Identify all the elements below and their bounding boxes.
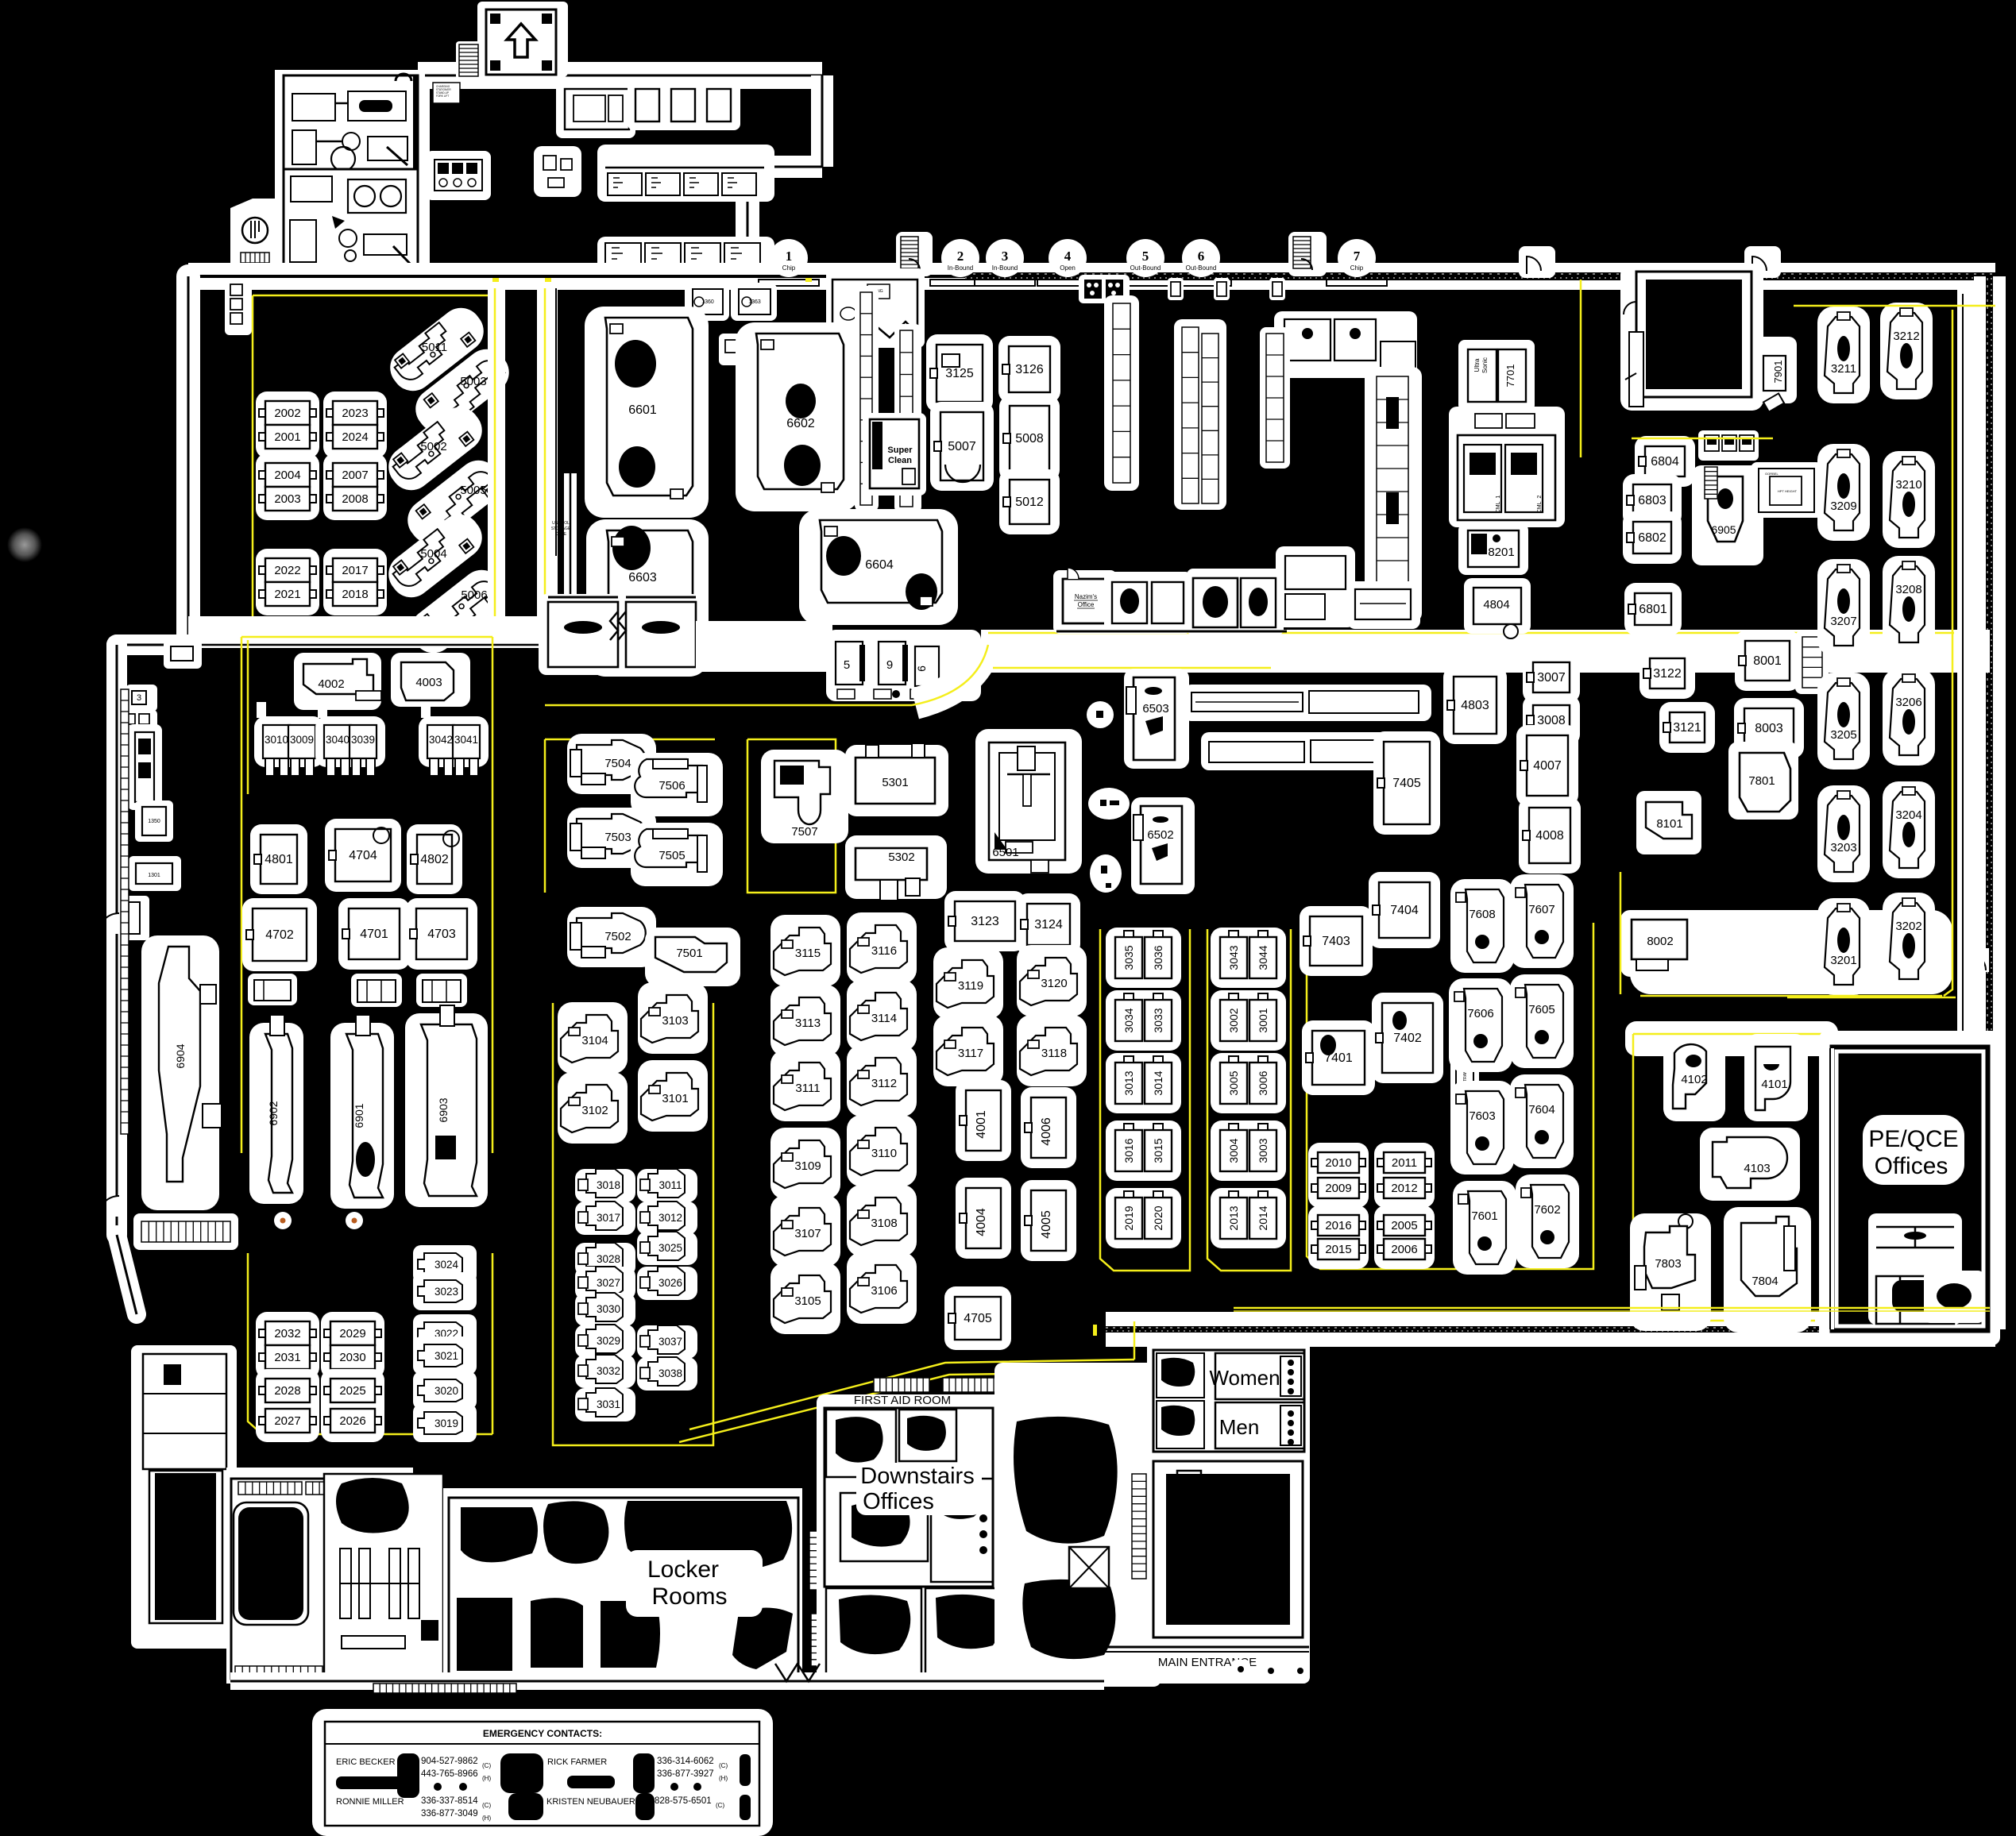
svg-text:2025: 2025 [339, 1384, 365, 1398]
svg-text:FORK LIFT: FORK LIFT [436, 94, 449, 98]
svg-text:7801: 7801 [1748, 774, 1775, 788]
svg-text:3212: 3212 [1893, 330, 1919, 343]
svg-text:3125: 3125 [945, 367, 974, 380]
svg-text:2023: 2023 [342, 407, 368, 420]
svg-text:3112: 3112 [871, 1077, 897, 1090]
svg-text:3016: 3016 [1122, 1138, 1135, 1163]
svg-text:7401: 7401 [1324, 1051, 1353, 1065]
svg-text:3210: 3210 [1895, 478, 1921, 492]
svg-text:Chip: Chip [782, 264, 796, 272]
svg-text:2006: 2006 [1391, 1243, 1417, 1256]
svg-text:7803: 7803 [1655, 1257, 1681, 1271]
svg-text:3117: 3117 [958, 1047, 983, 1060]
svg-text:HPT HEIGHT: HPT HEIGHT [1778, 489, 1798, 493]
svg-text:3118: 3118 [1041, 1047, 1067, 1060]
svg-text:3037: 3037 [658, 1336, 682, 1348]
svg-text:5008: 5008 [1015, 432, 1044, 445]
svg-text:3119: 3119 [958, 979, 983, 993]
svg-text:3121: 3121 [1673, 721, 1701, 735]
svg-text:6: 6 [1198, 249, 1205, 264]
svg-text:GORBEL: GORBEL [1765, 472, 1778, 476]
svg-text:3034: 3034 [1122, 1008, 1135, 1032]
svg-text:KRISTEN NEUBAUER: KRISTEN NEUBAUER [546, 1797, 635, 1807]
svg-text:3026: 3026 [658, 1277, 682, 1289]
svg-text:443-765-8966: 443-765-8966 [421, 1769, 478, 1779]
svg-text:8201: 8201 [1488, 546, 1514, 559]
svg-text:3033: 3033 [1152, 1008, 1164, 1032]
svg-text:3035: 3035 [1122, 945, 1135, 970]
svg-text:6901: 6901 [353, 1103, 365, 1128]
svg-text:7507: 7507 [791, 825, 817, 839]
svg-text:2008: 2008 [342, 492, 368, 506]
svg-text:7608: 7608 [1469, 908, 1495, 921]
svg-text:3040: 3040 [326, 734, 350, 746]
svg-text:3042: 3042 [429, 734, 453, 746]
svg-text:3020: 3020 [434, 1385, 458, 1397]
svg-text:2018: 2018 [342, 588, 368, 601]
svg-text:1: 1 [786, 249, 793, 264]
svg-text:2016: 2016 [1325, 1219, 1351, 1232]
svg-text:3005: 3005 [1227, 1070, 1240, 1095]
svg-text:2021: 2021 [274, 588, 300, 601]
svg-text:4103: 4103 [1744, 1162, 1770, 1175]
svg-text:1350: 1350 [148, 819, 160, 824]
svg-text:6601: 6601 [628, 403, 657, 417]
svg-text:3011: 3011 [658, 1179, 682, 1191]
svg-text:8002: 8002 [1647, 935, 1673, 948]
svg-text:2032: 2032 [274, 1327, 300, 1340]
svg-text:3004: 3004 [1227, 1138, 1240, 1163]
svg-text:7601: 7601 [1471, 1209, 1497, 1223]
svg-text:3111: 3111 [795, 1082, 820, 1095]
svg-text:3014: 3014 [1152, 1070, 1164, 1095]
svg-text:2: 2 [957, 249, 964, 264]
svg-text:6802: 6802 [1638, 531, 1666, 545]
svg-text:3017: 3017 [597, 1212, 620, 1224]
svg-text:Sonic: Sonic [1481, 357, 1489, 373]
svg-text:4006: 4006 [1040, 1117, 1053, 1146]
svg-text:336-877-3049: 336-877-3049 [421, 1809, 478, 1819]
svg-text:4102: 4102 [1681, 1073, 1707, 1086]
svg-text:6905: 6905 [1711, 523, 1736, 536]
svg-text:6803: 6803 [1638, 494, 1666, 507]
svg-text:2029: 2029 [339, 1327, 365, 1340]
svg-text:2011: 2011 [1392, 1156, 1417, 1170]
svg-text:2030: 2030 [339, 1351, 365, 1364]
svg-text:5006: 5006 [461, 588, 487, 602]
svg-text:7804: 7804 [1751, 1275, 1778, 1288]
svg-text:7501: 7501 [676, 947, 702, 960]
svg-text:RICK FARMER: RICK FARMER [547, 1757, 607, 1767]
svg-text:2005: 2005 [1391, 1219, 1417, 1232]
svg-text:CML_1: CML_1 [1496, 496, 1501, 514]
svg-text:Chip: Chip [1350, 264, 1364, 272]
svg-text:3108: 3108 [871, 1217, 897, 1230]
svg-text:(C): (C) [482, 1802, 491, 1809]
svg-text:3043: 3043 [1227, 945, 1240, 970]
svg-text:3018: 3018 [597, 1179, 620, 1191]
svg-text:6502: 6502 [1147, 828, 1173, 842]
svg-text:7403: 7403 [1322, 935, 1350, 948]
svg-text:3028: 3028 [597, 1253, 620, 1265]
svg-text:3203: 3203 [1830, 841, 1856, 854]
svg-text:4002: 4002 [318, 677, 344, 691]
svg-text:5005: 5005 [460, 484, 486, 497]
svg-text:FIRST AID ROOM: FIRST AID ROOM [854, 1394, 951, 1407]
svg-text:3109: 3109 [794, 1159, 821, 1173]
svg-text:6503: 6503 [1142, 702, 1168, 715]
svg-text:2004: 2004 [274, 469, 300, 482]
svg-text:3102: 3102 [581, 1104, 608, 1117]
svg-text:3032: 3032 [597, 1365, 620, 1377]
svg-text:5302: 5302 [888, 850, 914, 864]
svg-text:7506: 7506 [658, 779, 685, 793]
svg-text:4007: 4007 [1533, 759, 1562, 773]
svg-text:5: 5 [844, 658, 850, 672]
svg-text:1301: 1301 [148, 873, 160, 878]
svg-text:4705: 4705 [964, 1312, 992, 1325]
svg-text:3036: 3036 [1152, 945, 1164, 970]
svg-text:3211: 3211 [1831, 362, 1856, 376]
svg-text:8003: 8003 [1755, 722, 1783, 735]
svg-text:7402: 7402 [1393, 1032, 1422, 1045]
svg-text:4008: 4008 [1535, 829, 1564, 843]
svg-text:4003: 4003 [415, 676, 442, 689]
svg-text:5002: 5002 [420, 440, 446, 453]
svg-text:9: 9 [886, 658, 893, 672]
svg-text:3110: 3110 [871, 1147, 897, 1160]
svg-text:3120: 3120 [1041, 977, 1067, 990]
svg-text:336-314-6062: 336-314-6062 [657, 1757, 714, 1766]
svg-text:2028: 2028 [274, 1384, 300, 1398]
svg-text:Super: Super [887, 445, 913, 455]
svg-text:4802: 4802 [420, 853, 449, 866]
svg-text:3107: 3107 [794, 1227, 821, 1240]
svg-text:7502: 7502 [604, 930, 631, 943]
svg-text:3207: 3207 [1830, 615, 1856, 628]
svg-text:2010: 2010 [1325, 1156, 1351, 1170]
svg-text:6602: 6602 [786, 417, 815, 430]
svg-text:3001: 3001 [1257, 1008, 1269, 1032]
svg-text:4101: 4101 [1761, 1078, 1787, 1091]
svg-text:3029: 3029 [597, 1335, 620, 1347]
svg-text:Rooms: Rooms [651, 1583, 727, 1610]
svg-text:US TOOL: US TOOL [552, 521, 570, 526]
svg-text:4801: 4801 [265, 853, 293, 866]
svg-text:5011: 5011 [422, 341, 447, 354]
svg-text:3201: 3201 [1830, 954, 1856, 967]
svg-text:3103: 3103 [662, 1014, 688, 1028]
svg-text:7404: 7404 [1390, 904, 1419, 917]
svg-text:2002: 2002 [274, 407, 300, 420]
svg-text:3044: 3044 [1257, 945, 1269, 970]
svg-text:(H): (H) [482, 1815, 491, 1822]
svg-text:8001: 8001 [1753, 654, 1782, 668]
svg-text:6903: 6903 [437, 1097, 450, 1122]
svg-text:2014: 2014 [1257, 1205, 1269, 1230]
svg-text:3204: 3204 [1895, 808, 1921, 822]
svg-text:(C): (C) [482, 1762, 491, 1769]
svg-text:RONNIE MILLER: RONNIE MILLER [336, 1797, 404, 1807]
svg-text:5012: 5012 [1015, 496, 1044, 509]
svg-text:7603: 7603 [1469, 1109, 1495, 1123]
svg-text:3041: 3041 [454, 734, 478, 746]
svg-text:7405: 7405 [1392, 777, 1421, 790]
svg-text:7504: 7504 [604, 757, 631, 770]
svg-text:4703: 4703 [427, 928, 456, 941]
svg-text:7605: 7605 [1528, 1003, 1554, 1016]
svg-text:PE/QCE: PE/QCE [1868, 1126, 1958, 1152]
svg-text:5301: 5301 [882, 776, 908, 789]
svg-text:5003: 5003 [460, 375, 486, 388]
svg-text:3101: 3101 [662, 1092, 688, 1105]
svg-text:2003: 2003 [274, 492, 300, 506]
svg-text:7901: 7901 [1772, 361, 1784, 384]
svg-text:Nazim's: Nazim's [1075, 593, 1097, 600]
svg-text:8101: 8101 [1656, 817, 1682, 831]
svg-text:3039: 3039 [351, 734, 375, 746]
svg-text:3010: 3010 [265, 734, 288, 746]
svg-text:3: 3 [137, 693, 141, 703]
svg-text:2015: 2015 [1325, 1243, 1351, 1256]
svg-text:7: 7 [1354, 249, 1361, 264]
svg-text:7604: 7604 [1528, 1103, 1554, 1117]
svg-text:3105: 3105 [794, 1294, 821, 1308]
svg-text:4804: 4804 [1483, 598, 1509, 611]
svg-text:3027: 3027 [597, 1277, 620, 1289]
svg-text:3122: 3122 [1653, 667, 1682, 681]
svg-text:3013: 3013 [1122, 1070, 1135, 1095]
svg-text:4803: 4803 [1461, 699, 1489, 712]
svg-text:7503: 7503 [604, 831, 631, 844]
svg-text:3209: 3209 [1830, 499, 1856, 513]
svg-text:Out-Bound: Out-Bound [1186, 264, 1217, 272]
svg-text:1360: 1360 [701, 299, 714, 305]
svg-text:3202: 3202 [1895, 920, 1921, 933]
svg-text:2027: 2027 [274, 1414, 300, 1428]
svg-text:6801: 6801 [1639, 603, 1667, 616]
svg-text:3205: 3205 [1830, 728, 1856, 742]
svg-text:3123: 3123 [971, 915, 999, 928]
svg-text:3002: 3002 [1227, 1008, 1240, 1032]
svg-text:3116: 3116 [871, 944, 897, 958]
svg-text:3019: 3019 [434, 1417, 458, 1429]
svg-text:Ultra: Ultra [1473, 358, 1481, 372]
svg-text:3208: 3208 [1895, 583, 1921, 596]
svg-text:6604: 6604 [865, 558, 894, 572]
svg-text:3003: 3003 [1257, 1138, 1269, 1163]
svg-text:7701: 7701 [1504, 364, 1516, 388]
svg-text:6804: 6804 [1651, 455, 1679, 469]
svg-text:6: 6 [915, 665, 928, 672]
svg-text:2019: 2019 [1122, 1205, 1135, 1230]
svg-text:(C): (C) [716, 1802, 724, 1809]
svg-text:2020: 2020 [1152, 1205, 1164, 1230]
svg-text:3113: 3113 [795, 1016, 821, 1030]
svg-text:3009: 3009 [290, 734, 314, 746]
svg-text:2024: 2024 [342, 430, 368, 444]
svg-text:3126: 3126 [1015, 363, 1044, 376]
svg-text:(C): (C) [719, 1762, 728, 1769]
svg-text:4704: 4704 [349, 849, 377, 862]
svg-text:CAGE: CAGE [555, 532, 567, 537]
svg-text:3024: 3024 [434, 1259, 459, 1271]
svg-text:2013: 2013 [1227, 1205, 1240, 1230]
svg-text:4001: 4001 [975, 1110, 988, 1139]
svg-text:3031: 3031 [597, 1398, 620, 1410]
svg-text:Downstairs: Downstairs [860, 1464, 974, 1489]
svg-text:6904: 6904 [174, 1043, 187, 1068]
svg-text:7602: 7602 [1534, 1203, 1560, 1217]
svg-text:7607: 7607 [1528, 903, 1554, 916]
svg-text:3006: 3006 [1257, 1070, 1269, 1095]
svg-text:3206: 3206 [1895, 696, 1921, 709]
svg-text:(H): (H) [719, 1775, 728, 1782]
svg-text:2031: 2031 [274, 1351, 300, 1364]
svg-text:2022: 2022 [274, 564, 300, 577]
svg-text:4: 4 [1064, 249, 1072, 264]
svg-text:3: 3 [1002, 249, 1009, 264]
svg-text:2012: 2012 [1391, 1182, 1417, 1195]
svg-text:336-877-3927: 336-877-3927 [657, 1769, 714, 1779]
svg-text:2017: 2017 [342, 564, 368, 577]
svg-text:Offices: Offices [1875, 1153, 1948, 1179]
svg-text:2001: 2001 [274, 430, 300, 444]
svg-text:Men: Men [1219, 1415, 1260, 1439]
svg-text:5: 5 [1142, 249, 1149, 264]
svg-text:Offices: Offices [863, 1489, 934, 1514]
svg-text:3012: 3012 [658, 1212, 682, 1224]
svg-text:3025: 3025 [658, 1242, 682, 1254]
svg-text:3030: 3030 [597, 1303, 620, 1315]
svg-text:Women: Women [1209, 1366, 1280, 1390]
svg-text:Locker: Locker [647, 1556, 719, 1583]
svg-text:3015: 3015 [1152, 1138, 1164, 1163]
svg-text:828-575-6501: 828-575-6501 [655, 1796, 712, 1806]
svg-text:7606: 7606 [1467, 1007, 1493, 1020]
svg-text:3023: 3023 [434, 1286, 458, 1298]
svg-text:4701: 4701 [360, 928, 388, 941]
svg-text:3038: 3038 [658, 1367, 682, 1379]
svg-text:Open: Open [1060, 264, 1076, 272]
svg-text:7505: 7505 [658, 849, 685, 862]
svg-text:4702: 4702 [265, 928, 294, 942]
svg-text:4004: 4004 [975, 1208, 988, 1236]
svg-text:STORAGE: STORAGE [551, 526, 571, 531]
svg-text:1363: 1363 [748, 299, 761, 305]
svg-text:(H): (H) [482, 1775, 491, 1782]
svg-text:5004: 5004 [420, 547, 446, 561]
svg-text:ERIC BECKER: ERIC BECKER [336, 1757, 396, 1767]
svg-text:Out-Bound: Out-Bound [1130, 264, 1161, 272]
svg-text:2007: 2007 [342, 469, 368, 482]
svg-text:4005: 4005 [1040, 1210, 1053, 1239]
svg-text:3021: 3021 [434, 1350, 458, 1362]
svg-text:6902: 6902 [267, 1101, 280, 1125]
svg-text:3124: 3124 [1034, 918, 1063, 931]
svg-text:5007: 5007 [948, 440, 976, 453]
svg-text:3115: 3115 [795, 947, 821, 960]
svg-text:CML_2: CML_2 [1537, 496, 1543, 514]
svg-text:6603: 6603 [628, 571, 657, 584]
svg-text:2026: 2026 [339, 1414, 365, 1428]
svg-text:Clean: Clean [888, 456, 912, 465]
svg-text:EMERGENCY CONTACTS:: EMERGENCY CONTACTS: [483, 1728, 602, 1739]
svg-text:336-337-8514: 336-337-8514 [421, 1796, 478, 1806]
svg-text:3106: 3106 [871, 1284, 897, 1298]
svg-text:904-527-9862: 904-527-9862 [421, 1757, 478, 1766]
svg-text:Office: Office [1078, 601, 1095, 608]
svg-text:In-Bound: In-Bound [948, 264, 973, 272]
svg-text:3104: 3104 [581, 1034, 608, 1047]
svg-text:6501: 6501 [992, 846, 1018, 859]
svg-text:2009: 2009 [1325, 1182, 1351, 1195]
svg-text:In-Bound: In-Bound [992, 264, 1018, 272]
svg-text:3114: 3114 [871, 1012, 897, 1025]
svg-text:3007: 3007 [1537, 671, 1566, 685]
